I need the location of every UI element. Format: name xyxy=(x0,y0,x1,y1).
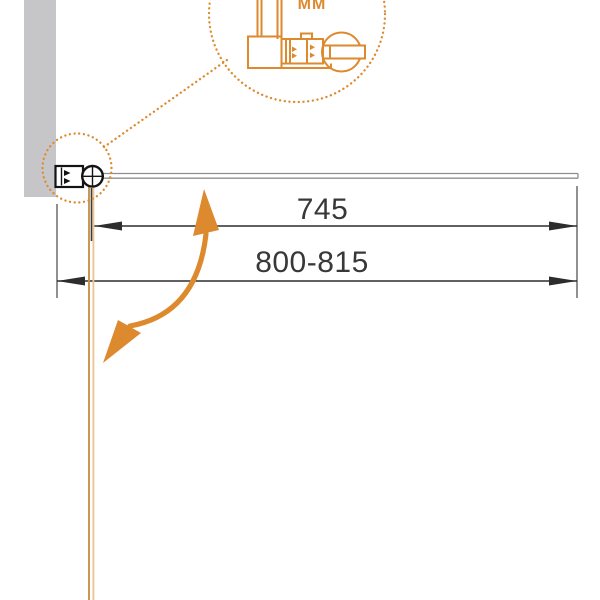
clamp-tooth-icon xyxy=(292,47,297,53)
clamp-teeth xyxy=(292,45,315,59)
pivot-slot-magnified xyxy=(330,46,365,59)
arrow-left-icon xyxy=(94,222,122,231)
clamp-body-magnified xyxy=(282,39,324,64)
door-panel-open xyxy=(89,187,93,600)
hinge-assembly xyxy=(56,166,105,188)
diagram-canvas xyxy=(0,0,600,600)
arrow-up-icon xyxy=(193,189,219,236)
clamp-top-tab xyxy=(301,34,312,40)
hinge-wall-profile xyxy=(56,166,84,187)
swing-arrowheads xyxy=(103,189,219,363)
wall-strip xyxy=(24,0,56,197)
wall-profile-magnified xyxy=(248,37,282,69)
callout-connector-line xyxy=(104,60,227,147)
dimension-label-installation-width: 800-815 xyxy=(228,248,396,278)
arrow-right-icon xyxy=(549,222,577,231)
arrow-left-icon xyxy=(57,277,85,286)
clamp-tooth-icon xyxy=(310,45,315,51)
swing-arc xyxy=(130,234,206,326)
unit-label: MM xyxy=(288,0,336,13)
clamp-tooth-icon xyxy=(292,53,297,59)
arrow-right-icon xyxy=(549,277,577,286)
dimension-label-glass-width: 745 xyxy=(240,195,405,225)
shower-door-diagram: MM 745 800-815 xyxy=(0,0,600,600)
swing-arrow xyxy=(103,189,219,363)
clamp-tooth-icon xyxy=(310,53,315,59)
glass-panel-closed xyxy=(103,174,578,179)
